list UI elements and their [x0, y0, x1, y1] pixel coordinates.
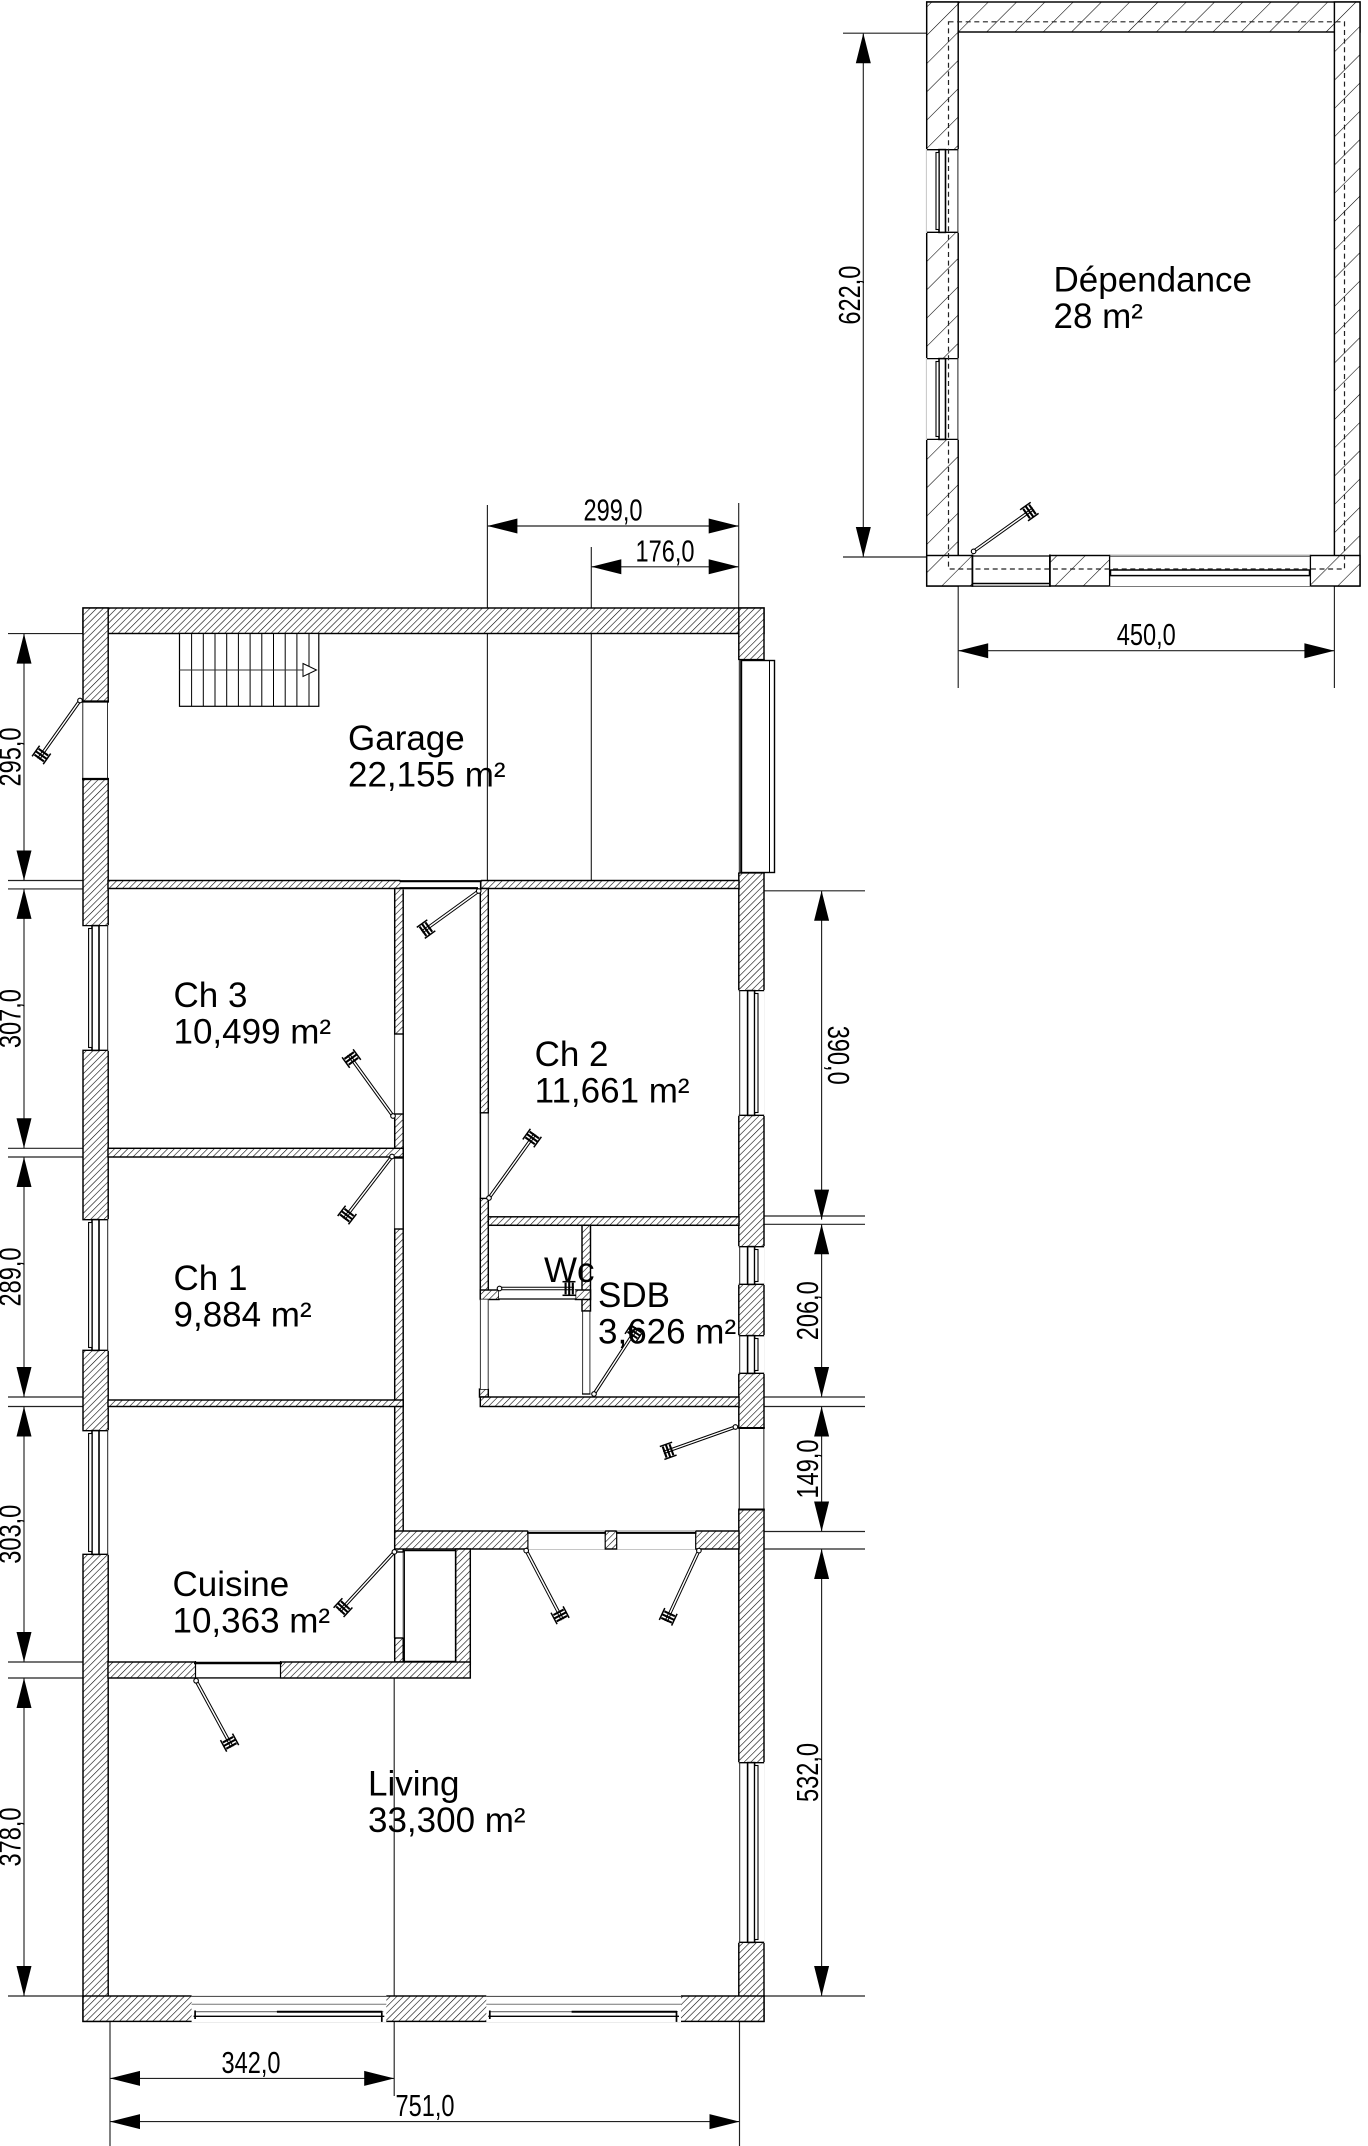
svg-text:378,0: 378,0	[0, 1808, 28, 1867]
svg-text:390,0: 390,0	[821, 1026, 856, 1085]
svg-text:28 m²: 28 m²	[1054, 297, 1143, 336]
svg-text:295,0: 295,0	[0, 728, 28, 787]
svg-text:450,0: 450,0	[1117, 617, 1176, 652]
svg-text:Living: Living	[368, 1764, 459, 1803]
svg-text:Dépendance: Dépendance	[1054, 261, 1253, 300]
svg-text:Ch 1: Ch 1	[174, 1259, 248, 1298]
svg-text:751,0: 751,0	[396, 2088, 455, 2123]
svg-text:307,0: 307,0	[0, 989, 28, 1048]
svg-text:Wc: Wc	[544, 1251, 595, 1290]
svg-text:10,363 m²: 10,363 m²	[173, 1601, 331, 1640]
svg-text:303,0: 303,0	[0, 1505, 28, 1564]
svg-text:622,0: 622,0	[832, 266, 867, 325]
svg-text:22,155 m²: 22,155 m²	[348, 755, 506, 794]
svg-text:149,0: 149,0	[790, 1440, 825, 1499]
svg-text:532,0: 532,0	[790, 1743, 825, 1802]
svg-text:289,0: 289,0	[0, 1248, 28, 1307]
svg-text:9,884 m²: 9,884 m²	[174, 1295, 312, 1334]
svg-text:Ch 3: Ch 3	[174, 976, 248, 1015]
svg-text:10,499 m²: 10,499 m²	[174, 1012, 332, 1051]
svg-text:Ch 2: Ch 2	[535, 1035, 609, 1074]
svg-text:3,626 m²: 3,626 m²	[598, 1312, 736, 1351]
svg-text:299,0: 299,0	[584, 493, 643, 528]
svg-text:Garage: Garage	[348, 719, 465, 758]
svg-text:176,0: 176,0	[636, 533, 695, 568]
svg-text:11,661 m²: 11,661 m²	[535, 1071, 690, 1110]
svg-text:342,0: 342,0	[222, 2045, 281, 2080]
svg-text:33,300 m²: 33,300 m²	[368, 1801, 526, 1840]
svg-text:SDB: SDB	[598, 1276, 670, 1315]
svg-text:Cuisine: Cuisine	[173, 1565, 290, 1604]
svg-text:206,0: 206,0	[790, 1281, 825, 1340]
